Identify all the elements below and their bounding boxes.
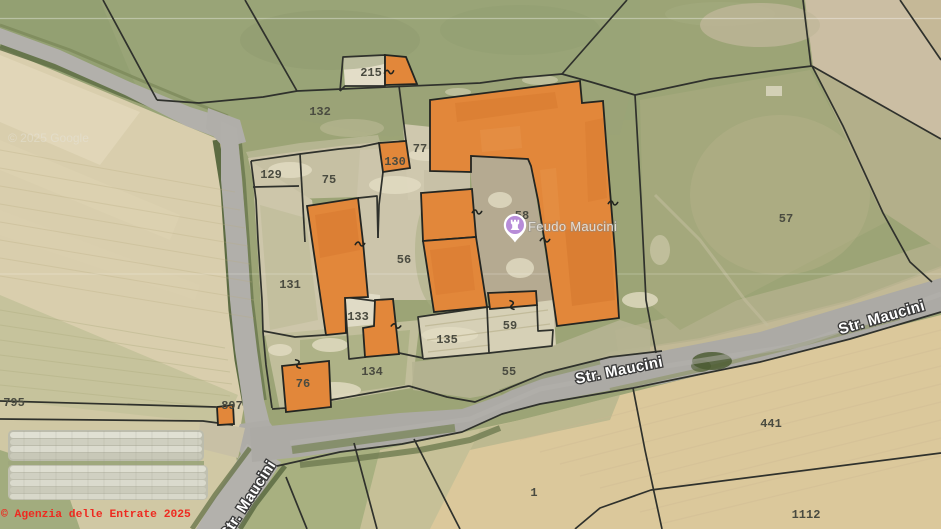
svg-text:897: 897 bbox=[221, 399, 243, 413]
svg-text:1: 1 bbox=[530, 486, 537, 500]
svg-text:215: 215 bbox=[360, 66, 382, 80]
svg-text:77: 77 bbox=[413, 142, 427, 156]
svg-text:75: 75 bbox=[322, 173, 336, 187]
svg-text:130: 130 bbox=[384, 155, 406, 169]
svg-text:57: 57 bbox=[779, 212, 793, 226]
svg-text:© 2025 Google: © 2025 Google bbox=[8, 131, 89, 145]
svg-text:795: 795 bbox=[3, 396, 25, 410]
svg-text:129: 129 bbox=[260, 168, 282, 182]
svg-text:55: 55 bbox=[502, 365, 516, 379]
svg-text:135: 135 bbox=[436, 333, 458, 347]
svg-text:56: 56 bbox=[397, 253, 411, 267]
svg-text:132: 132 bbox=[309, 105, 331, 119]
svg-text:133: 133 bbox=[347, 310, 369, 324]
svg-text:© Agenzia delle Entrate 2025: © Agenzia delle Entrate 2025 bbox=[1, 509, 191, 521]
svg-text:Feudo Maucini: Feudo Maucini bbox=[528, 219, 617, 234]
svg-text:441: 441 bbox=[760, 417, 782, 431]
svg-text:131: 131 bbox=[279, 278, 301, 292]
svg-text:76: 76 bbox=[296, 377, 310, 391]
svg-text:1112: 1112 bbox=[792, 508, 821, 522]
svg-text:59: 59 bbox=[503, 319, 517, 333]
svg-text:134: 134 bbox=[361, 365, 383, 379]
